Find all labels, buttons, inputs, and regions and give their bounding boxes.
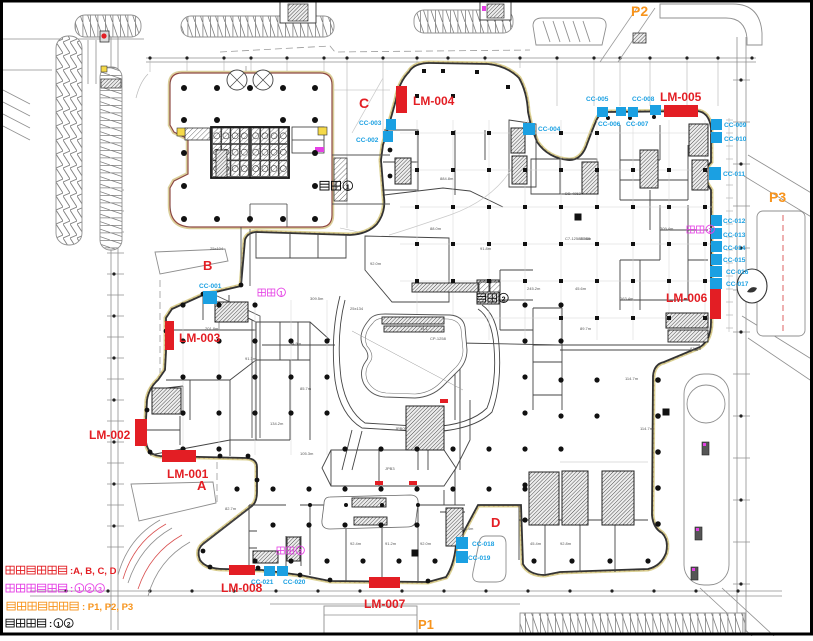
svg-text:A: A — [197, 478, 207, 493]
svg-text:LM-006: LM-006 — [666, 291, 708, 305]
svg-text:LM-004: LM-004 — [413, 94, 455, 108]
svg-text:CC-018: CC-018 — [472, 541, 495, 548]
svg-text:88.0m: 88.0m — [430, 226, 442, 231]
svg-text:CC-007: CC-007 — [626, 121, 649, 128]
svg-text:14.1: 14.1 — [420, 326, 429, 331]
svg-text:CC-003: CC-003 — [359, 120, 382, 127]
svg-text:2: 2 — [67, 621, 71, 628]
svg-text:25x104: 25x104 — [210, 246, 224, 251]
svg-text:CC-011: CC-011 — [723, 171, 745, 178]
svg-text:3: 3 — [98, 586, 102, 593]
svg-text:CC-009: CC-009 — [724, 122, 747, 129]
svg-text:CC-020: CC-020 — [283, 579, 306, 586]
svg-text:LM-007: LM-007 — [364, 597, 406, 611]
svg-text:245.2m: 245.2m — [527, 286, 541, 291]
svg-text:134.2m: 134.2m — [270, 421, 284, 426]
svg-text:C7-12583.585: C7-12583.585 — [565, 236, 591, 241]
svg-text:105.4m: 105.4m — [460, 526, 474, 531]
svg-text:CP-1258: CP-1258 — [430, 336, 447, 341]
svg-text:CC-001: CC-001 — [199, 283, 222, 290]
svg-text:1: 1 — [78, 586, 82, 593]
svg-text:3: 3 — [298, 548, 302, 555]
svg-text:85.7m: 85.7m — [300, 386, 312, 391]
svg-text:309.4m: 309.4m — [660, 226, 674, 231]
svg-text:C: C — [359, 95, 369, 111]
svg-text:P3: P3 — [769, 189, 786, 205]
svg-text:25x134: 25x134 — [350, 306, 364, 311]
svg-text:94.9m: 94.9m — [290, 341, 302, 346]
svg-text:CC-016: CC-016 — [726, 269, 749, 276]
svg-text:92.0m: 92.0m — [420, 541, 432, 546]
svg-text:JPB05: JPB05 — [395, 426, 408, 431]
svg-text:CC-008: CC-008 — [632, 96, 655, 103]
svg-text:92.0m: 92.0m — [370, 261, 382, 266]
svg-text:CC-002: CC-002 — [356, 137, 379, 144]
svg-text:1: 1 — [57, 621, 61, 628]
svg-text:2: 2 — [708, 227, 712, 234]
svg-text:DB-4952: DB-4952 — [565, 191, 582, 196]
svg-text:CC-019: CC-019 — [468, 555, 491, 562]
svg-text:45.4m: 45.4m — [530, 541, 542, 546]
svg-text:CC-013: CC-013 — [723, 232, 746, 239]
svg-text:89.7m: 89.7m — [580, 326, 592, 331]
svg-text::: : — [70, 584, 73, 595]
svg-text:P2: P2 — [631, 3, 648, 19]
svg-text:CC-021: CC-021 — [251, 579, 274, 586]
svg-text:LM-002: LM-002 — [89, 428, 131, 442]
svg-text:CC-017: CC-017 — [726, 281, 749, 288]
svg-text:91.2m: 91.2m — [385, 541, 397, 546]
svg-text:CC-010: CC-010 — [724, 136, 747, 143]
svg-text:92.8m: 92.8m — [560, 541, 572, 546]
svg-text:2: 2 — [88, 586, 92, 593]
svg-text:87.7m: 87.7m — [690, 346, 702, 351]
svg-text:92.4m: 92.4m — [350, 541, 362, 546]
svg-text:2: 2 — [502, 295, 506, 303]
svg-text:82.7m: 82.7m — [225, 506, 237, 511]
svg-text:1: 1 — [279, 290, 283, 297]
svg-text:CC-014: CC-014 — [723, 245, 746, 252]
svg-text:91.8m: 91.8m — [480, 246, 492, 251]
svg-text:CC-004: CC-004 — [538, 126, 561, 133]
svg-text:105.3m: 105.3m — [300, 451, 314, 456]
svg-text:45.6m: 45.6m — [575, 286, 587, 291]
svg-text:CC-005: CC-005 — [586, 96, 609, 103]
svg-text:P1: P1 — [418, 617, 434, 632]
svg-text:309.5m: 309.5m — [310, 296, 324, 301]
svg-text:163.4m: 163.4m — [620, 296, 634, 301]
svg-text:CC-006: CC-006 — [598, 121, 621, 128]
svg-text:114.7m: 114.7m — [625, 376, 639, 381]
svg-text:91.3m: 91.3m — [245, 356, 257, 361]
svg-text::A, B, C, D: :A, B, C, D — [70, 566, 117, 577]
svg-text:CC-012: CC-012 — [723, 218, 746, 225]
svg-text:1: 1 — [346, 182, 350, 191]
svg-text:B: B — [203, 258, 212, 273]
svg-text:: P1, P2, P3: : P1, P2, P3 — [82, 602, 133, 613]
svg-text:114.7m: 114.7m — [640, 426, 654, 431]
svg-text:D: D — [491, 515, 500, 530]
svg-text:LM-003: LM-003 — [179, 331, 221, 345]
svg-text::: : — [49, 619, 52, 630]
svg-text:LM-005: LM-005 — [660, 90, 702, 104]
svg-text:CC-015: CC-015 — [723, 257, 746, 264]
svg-text:JPB3: JPB3 — [385, 466, 395, 471]
svg-text:884.8m: 884.8m — [440, 176, 454, 181]
